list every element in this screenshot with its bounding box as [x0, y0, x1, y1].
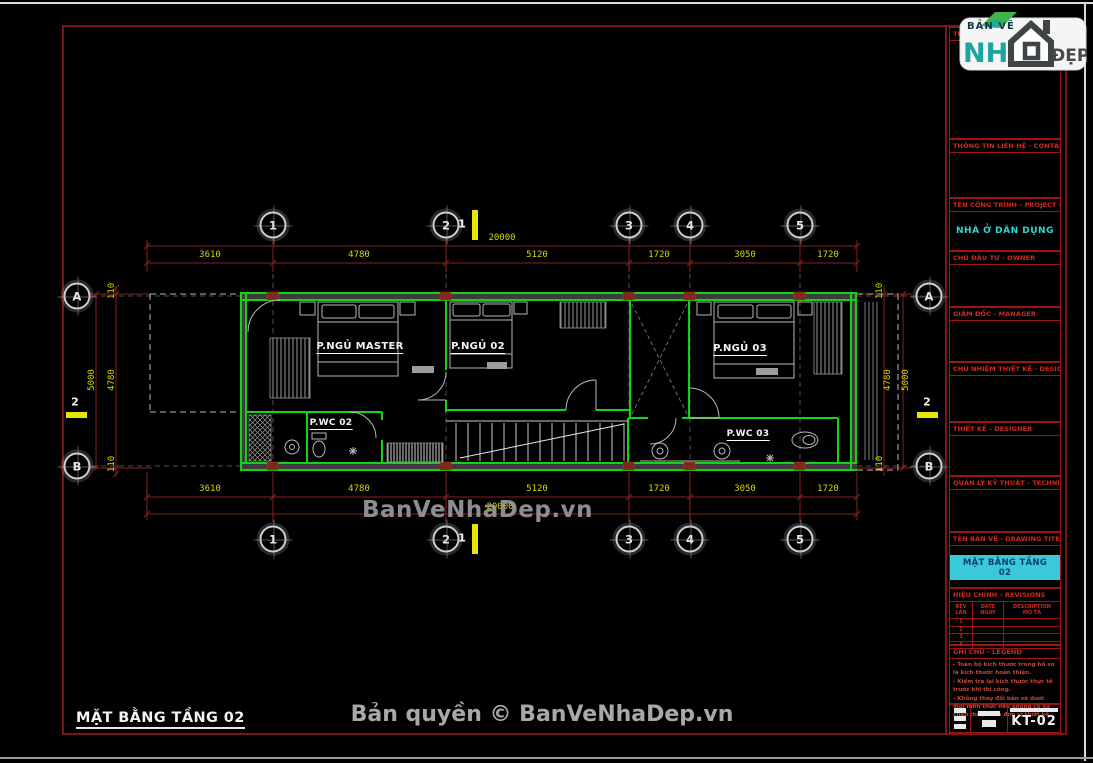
- titleblock-section-drawing-title: TÊN BẢN VẼ - DRAWING TITEL MẶT BẰNG TẦNG…: [949, 532, 1061, 588]
- scale-boxes: [950, 705, 971, 732]
- section-label: THÔNG TIN LIÊN HỆ - CONTACT INFO: [950, 140, 1060, 153]
- grid-bubble-4-top: 4: [677, 212, 704, 239]
- dim-top-1: 3610: [199, 250, 221, 260]
- dim-top-3: 5120: [526, 250, 548, 260]
- revision-row: 2: [950, 627, 1060, 635]
- project-name: NHÀ Ở DÂN DỤNG: [950, 212, 1060, 250]
- logo-graphic: BẢN VẼ NH ĐẸP: [959, 12, 1087, 76]
- beds: [300, 302, 812, 378]
- revision-row: 3: [950, 634, 1060, 642]
- section-label: HIỆU CHỈNH - REVISIONS: [950, 589, 1060, 602]
- dim-right-total: 5000: [901, 369, 911, 391]
- section-marker-2-left: 2: [71, 396, 79, 409]
- titleblock-section-design-manager: CHỦ NHIỆM THIẾT KẾ - DESIGN MANAGER: [949, 362, 1061, 422]
- titleblock-section-designer: THIẾT KẾ - DESIGNER: [949, 422, 1061, 476]
- dim-top-total: 20000: [488, 233, 515, 243]
- logo-house-window: [1025, 44, 1038, 58]
- sheet-number-bar: [1010, 708, 1058, 712]
- dim-right-110-top: 110: [875, 283, 885, 299]
- room-label-master: P.NGỦ MASTER: [316, 341, 403, 354]
- section-label: TÊN BẢN VẼ - DRAWING TITEL: [950, 533, 1060, 546]
- rev-col-header: LẦN: [955, 610, 966, 617]
- staircase: [446, 421, 628, 461]
- drawing-title-chip: MẶT BẰNG TẦNG 02: [950, 555, 1060, 580]
- logo-word-right: ĐẸP: [1051, 46, 1087, 66]
- walls: [240, 293, 857, 470]
- grid-bubble-A-left: A: [64, 283, 91, 310]
- dim-left-4780: 4780: [107, 369, 117, 391]
- section-label: TÊN CÔNG TRÌNH - PROJECT NAME: [950, 199, 1060, 212]
- section-label: CHỦ ĐẦU TƯ - OWNER: [950, 252, 1060, 265]
- titleblock-section-technical-manager: QUẢN LÝ KỸ THUẬT - TECHNICAL MANAGER: [949, 476, 1061, 532]
- revision-table: REVLẦN DATENGÀY DESCRIPTIONMÔ TẢ 1 2 3 4: [950, 602, 1060, 649]
- note-line: - Kiểm tra lại kích thước thực tế trước …: [953, 678, 1057, 695]
- logo-word-left: NH: [963, 38, 1008, 69]
- titleblock-section-owner: CHỦ ĐẦU TƯ - OWNER: [949, 251, 1061, 307]
- copyright-text: Bản quyền © BanVeNhaDep.vn: [351, 702, 734, 727]
- section-marker-1-top: 1: [458, 218, 466, 231]
- revision-row: 1: [950, 619, 1060, 627]
- dim-left-110-bot: 110: [107, 456, 117, 472]
- grid-bubble-4-bottom: 4: [677, 526, 704, 553]
- titleblock-section-project: TÊN CÔNG TRÌNH - PROJECT NAME NHÀ Ở DÂN …: [949, 198, 1061, 251]
- side-awning-hatch: [862, 302, 880, 460]
- cad-sheet: { "page": { "watermark": "BanVeNhaDep.vn…: [0, 0, 1093, 763]
- dim-left-total: 5000: [87, 369, 97, 391]
- titleblock-section-contact: THÔNG TIN LIÊN HỆ - CONTACT INFO: [949, 139, 1061, 198]
- section-marker-bar-bottom: [472, 524, 478, 554]
- section-marker-2-right: 2: [923, 396, 931, 409]
- section-label: THIẾT KẾ - DESIGNER: [950, 423, 1060, 436]
- grid-bubble-3-top: 3: [616, 212, 643, 239]
- watermark: BanVeNhaDep.vn: [362, 497, 593, 523]
- note-line: - Toàn bộ kích thước trong hồ sơ là kích…: [953, 661, 1057, 678]
- dim-bottom-1: 3610: [199, 484, 221, 494]
- title-block: TƯ VẤN - CONSULTANT THÔNG TIN LIÊN HỆ - …: [948, 27, 1062, 731]
- floor-plan-canvas: [0, 0, 1093, 763]
- dim-bottom-2: 4780: [348, 484, 370, 494]
- section-label: CHỦ NHIỆM THIẾT KẾ - DESIGN MANAGER: [950, 363, 1060, 376]
- dim-right-4780: 4780: [883, 369, 893, 391]
- duct-shaft-hatch: [249, 415, 271, 461]
- grid-bubble-3-bottom: 3: [616, 526, 643, 553]
- titleblock-section-sheetnumber: KT-02: [949, 704, 1061, 733]
- rev-col-header: NGÀY: [980, 610, 995, 617]
- drawing-title-footer: MẶT BẰNG TẦNG 02: [76, 710, 245, 729]
- section-marker-bar-right: [917, 412, 938, 418]
- grid-bubble-B-left: B: [64, 453, 91, 480]
- grid-bubble-2-bottom: 2: [433, 526, 460, 553]
- dim-bottom-6: 1720: [817, 484, 839, 494]
- titleblock-section-manager: GIÁM ĐỐC - MANAGER: [949, 307, 1061, 362]
- room-label-bed3: P.NGỦ 03: [713, 343, 767, 356]
- grid-bubble-5-top: 5: [787, 212, 814, 239]
- date-boxes: [971, 705, 1008, 732]
- dim-bottom-5: 3050: [734, 484, 756, 494]
- sheet-number: KT-02: [1011, 714, 1057, 729]
- section-marker-bar-left: [66, 412, 87, 418]
- logo-tagline: BẢN VẼ: [967, 18, 1015, 32]
- void-marks: [632, 304, 687, 414]
- dim-top-4: 1720: [648, 250, 670, 260]
- grid-bubble-B-right: B: [916, 453, 943, 480]
- titleblock-section-legend: GHI CHÚ - LEGEND - Toàn bộ kích thước tr…: [949, 645, 1061, 704]
- banvenhadep-logo: BẢN VẼ NH ĐẸP: [959, 12, 1087, 76]
- grid-bubble-1-bottom: 1: [260, 526, 287, 553]
- dim-top-6: 1720: [817, 250, 839, 260]
- grid-bubble-2-top: 2: [433, 212, 460, 239]
- corridor-mat-hatch: [387, 443, 443, 462]
- room-label-bed2: P.NGỦ 02: [451, 341, 505, 354]
- rev-col-header: MÔ TẢ: [1023, 610, 1041, 617]
- dim-right-110-bot: 110: [875, 456, 885, 472]
- room-label-wc3: P.WC 03: [727, 429, 770, 441]
- dim-left-110-top: 110: [107, 283, 117, 299]
- grid-bubble-1-top: 1: [260, 212, 287, 239]
- section-marker-1-bottom: 1: [458, 532, 466, 545]
- grid-bubble-5-bottom: 5: [787, 526, 814, 553]
- dim-bottom-4: 1720: [648, 484, 670, 494]
- section-label: GHI CHÚ - LEGEND: [950, 646, 1060, 659]
- room-label-wc2: P.WC 02: [310, 418, 353, 430]
- titleblock-section-revisions: HIỆU CHỈNH - REVISIONS REVLẦN DATENGÀY D…: [949, 588, 1061, 645]
- dim-top-5: 3050: [734, 250, 756, 260]
- section-marker-bar-top: [472, 210, 478, 240]
- dimension-lines: [88, 240, 912, 520]
- dim-top-2: 4780: [348, 250, 370, 260]
- section-label: GIÁM ĐỐC - MANAGER: [950, 308, 1060, 321]
- section-label: QUẢN LÝ KỸ THUẬT - TECHNICAL MANAGER: [950, 477, 1060, 490]
- dim-bottom-3: 5120: [526, 484, 548, 494]
- grid-bubble-A-right: A: [916, 283, 943, 310]
